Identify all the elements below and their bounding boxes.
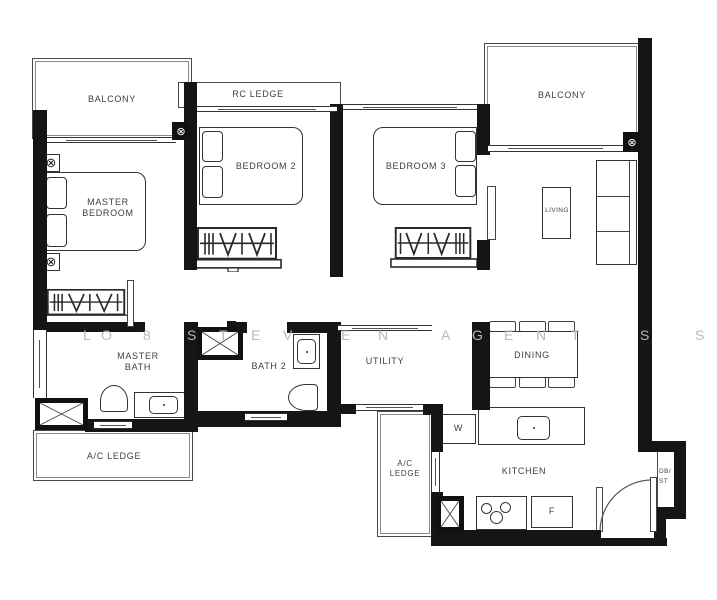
shower-icon xyxy=(35,398,88,430)
living-label: LIVING xyxy=(537,207,577,215)
sofa-cushion-line xyxy=(597,231,629,232)
bath2-label: BATH 2 xyxy=(247,361,291,372)
pillow xyxy=(202,131,223,162)
wardrobe-icon xyxy=(42,289,130,325)
sink-icon xyxy=(149,396,178,414)
wall xyxy=(341,404,356,414)
master-bath-window xyxy=(94,421,132,429)
pillow xyxy=(46,214,67,247)
entry-door-leaf xyxy=(650,477,657,532)
bedroom2-window xyxy=(197,106,337,112)
wall xyxy=(477,240,490,270)
shower-icon xyxy=(197,327,243,360)
master-bedroom-window xyxy=(47,137,176,143)
washer-label: W xyxy=(442,423,475,434)
watermark-letter: E xyxy=(251,327,260,343)
kitchen-ledge-window xyxy=(431,452,440,492)
fridge-box: F xyxy=(531,496,573,528)
sink-icon xyxy=(297,339,316,364)
bedroom2-label: BEDROOM 2 xyxy=(234,161,298,172)
master-bedroom-door-leaf xyxy=(127,280,134,327)
wardrobe-icon xyxy=(390,227,478,271)
sofa xyxy=(596,160,637,265)
pillow xyxy=(46,177,67,209)
db-st-label: DB/ ST xyxy=(659,467,675,487)
sofa-cushion-line xyxy=(597,196,629,197)
toilet-icon xyxy=(288,384,318,411)
burner-icon xyxy=(490,511,503,524)
burner-icon xyxy=(500,502,511,513)
wall xyxy=(656,507,686,519)
utility-window xyxy=(356,404,423,411)
dining-chair xyxy=(548,377,575,388)
wall xyxy=(472,322,490,410)
master-bedroom-label: MASTER BEDROOM xyxy=(73,197,143,220)
watermark-letter: A xyxy=(441,327,450,343)
ac-ledge-left-label: A/C LEDGE xyxy=(64,451,164,462)
wall xyxy=(330,104,343,277)
wall xyxy=(431,530,601,546)
bedroom3-window xyxy=(343,104,477,110)
kitchen-label: KITCHEN xyxy=(484,466,564,477)
junction-box-icon: ⊗ xyxy=(623,132,641,152)
junction-box-icon: ⊗ xyxy=(172,122,190,140)
bedroom3-door-leaf xyxy=(487,186,496,240)
balcony-left-label: BALCONY xyxy=(62,94,162,105)
ac-ledge-mid-label: A/C LEDGE xyxy=(383,459,427,479)
watermark-letter: S xyxy=(695,327,704,343)
wall xyxy=(601,538,667,546)
burner-icon xyxy=(481,503,492,514)
floor-plan: ⊗ ⊗ ⊗ ⊗ xyxy=(0,0,717,600)
washer-box: W xyxy=(441,414,476,444)
wardrobe-icon xyxy=(190,227,282,272)
pillow xyxy=(455,165,476,197)
floor-trap-icon xyxy=(436,496,464,532)
kitchen-sink-icon xyxy=(517,416,550,440)
toilet-icon xyxy=(100,385,128,412)
wall xyxy=(431,404,443,452)
wall xyxy=(638,38,652,443)
wall xyxy=(33,110,47,330)
pillow xyxy=(455,131,476,162)
sofa-back-line xyxy=(629,161,630,264)
wall xyxy=(184,322,198,430)
master-bath-label: MASTER BATH xyxy=(108,351,168,374)
rc-ledge-label: RC LEDGE xyxy=(208,89,308,100)
dining-chair xyxy=(489,377,516,388)
master-bath-side-window xyxy=(33,330,47,398)
living-balcony-slider xyxy=(488,145,623,152)
bedroom3-label: BEDROOM 3 xyxy=(384,161,448,172)
fridge-label: F xyxy=(532,506,572,517)
wall xyxy=(184,82,197,270)
entry-door-arc xyxy=(596,476,656,534)
dining-chair xyxy=(519,377,546,388)
dining-label: DINING xyxy=(497,350,567,361)
balcony-right-label: BALCONY xyxy=(512,90,612,101)
utility-label: UTILITY xyxy=(350,356,420,367)
bath2-window xyxy=(245,413,287,421)
pillow xyxy=(202,166,223,198)
utility-counter-line xyxy=(338,325,432,331)
